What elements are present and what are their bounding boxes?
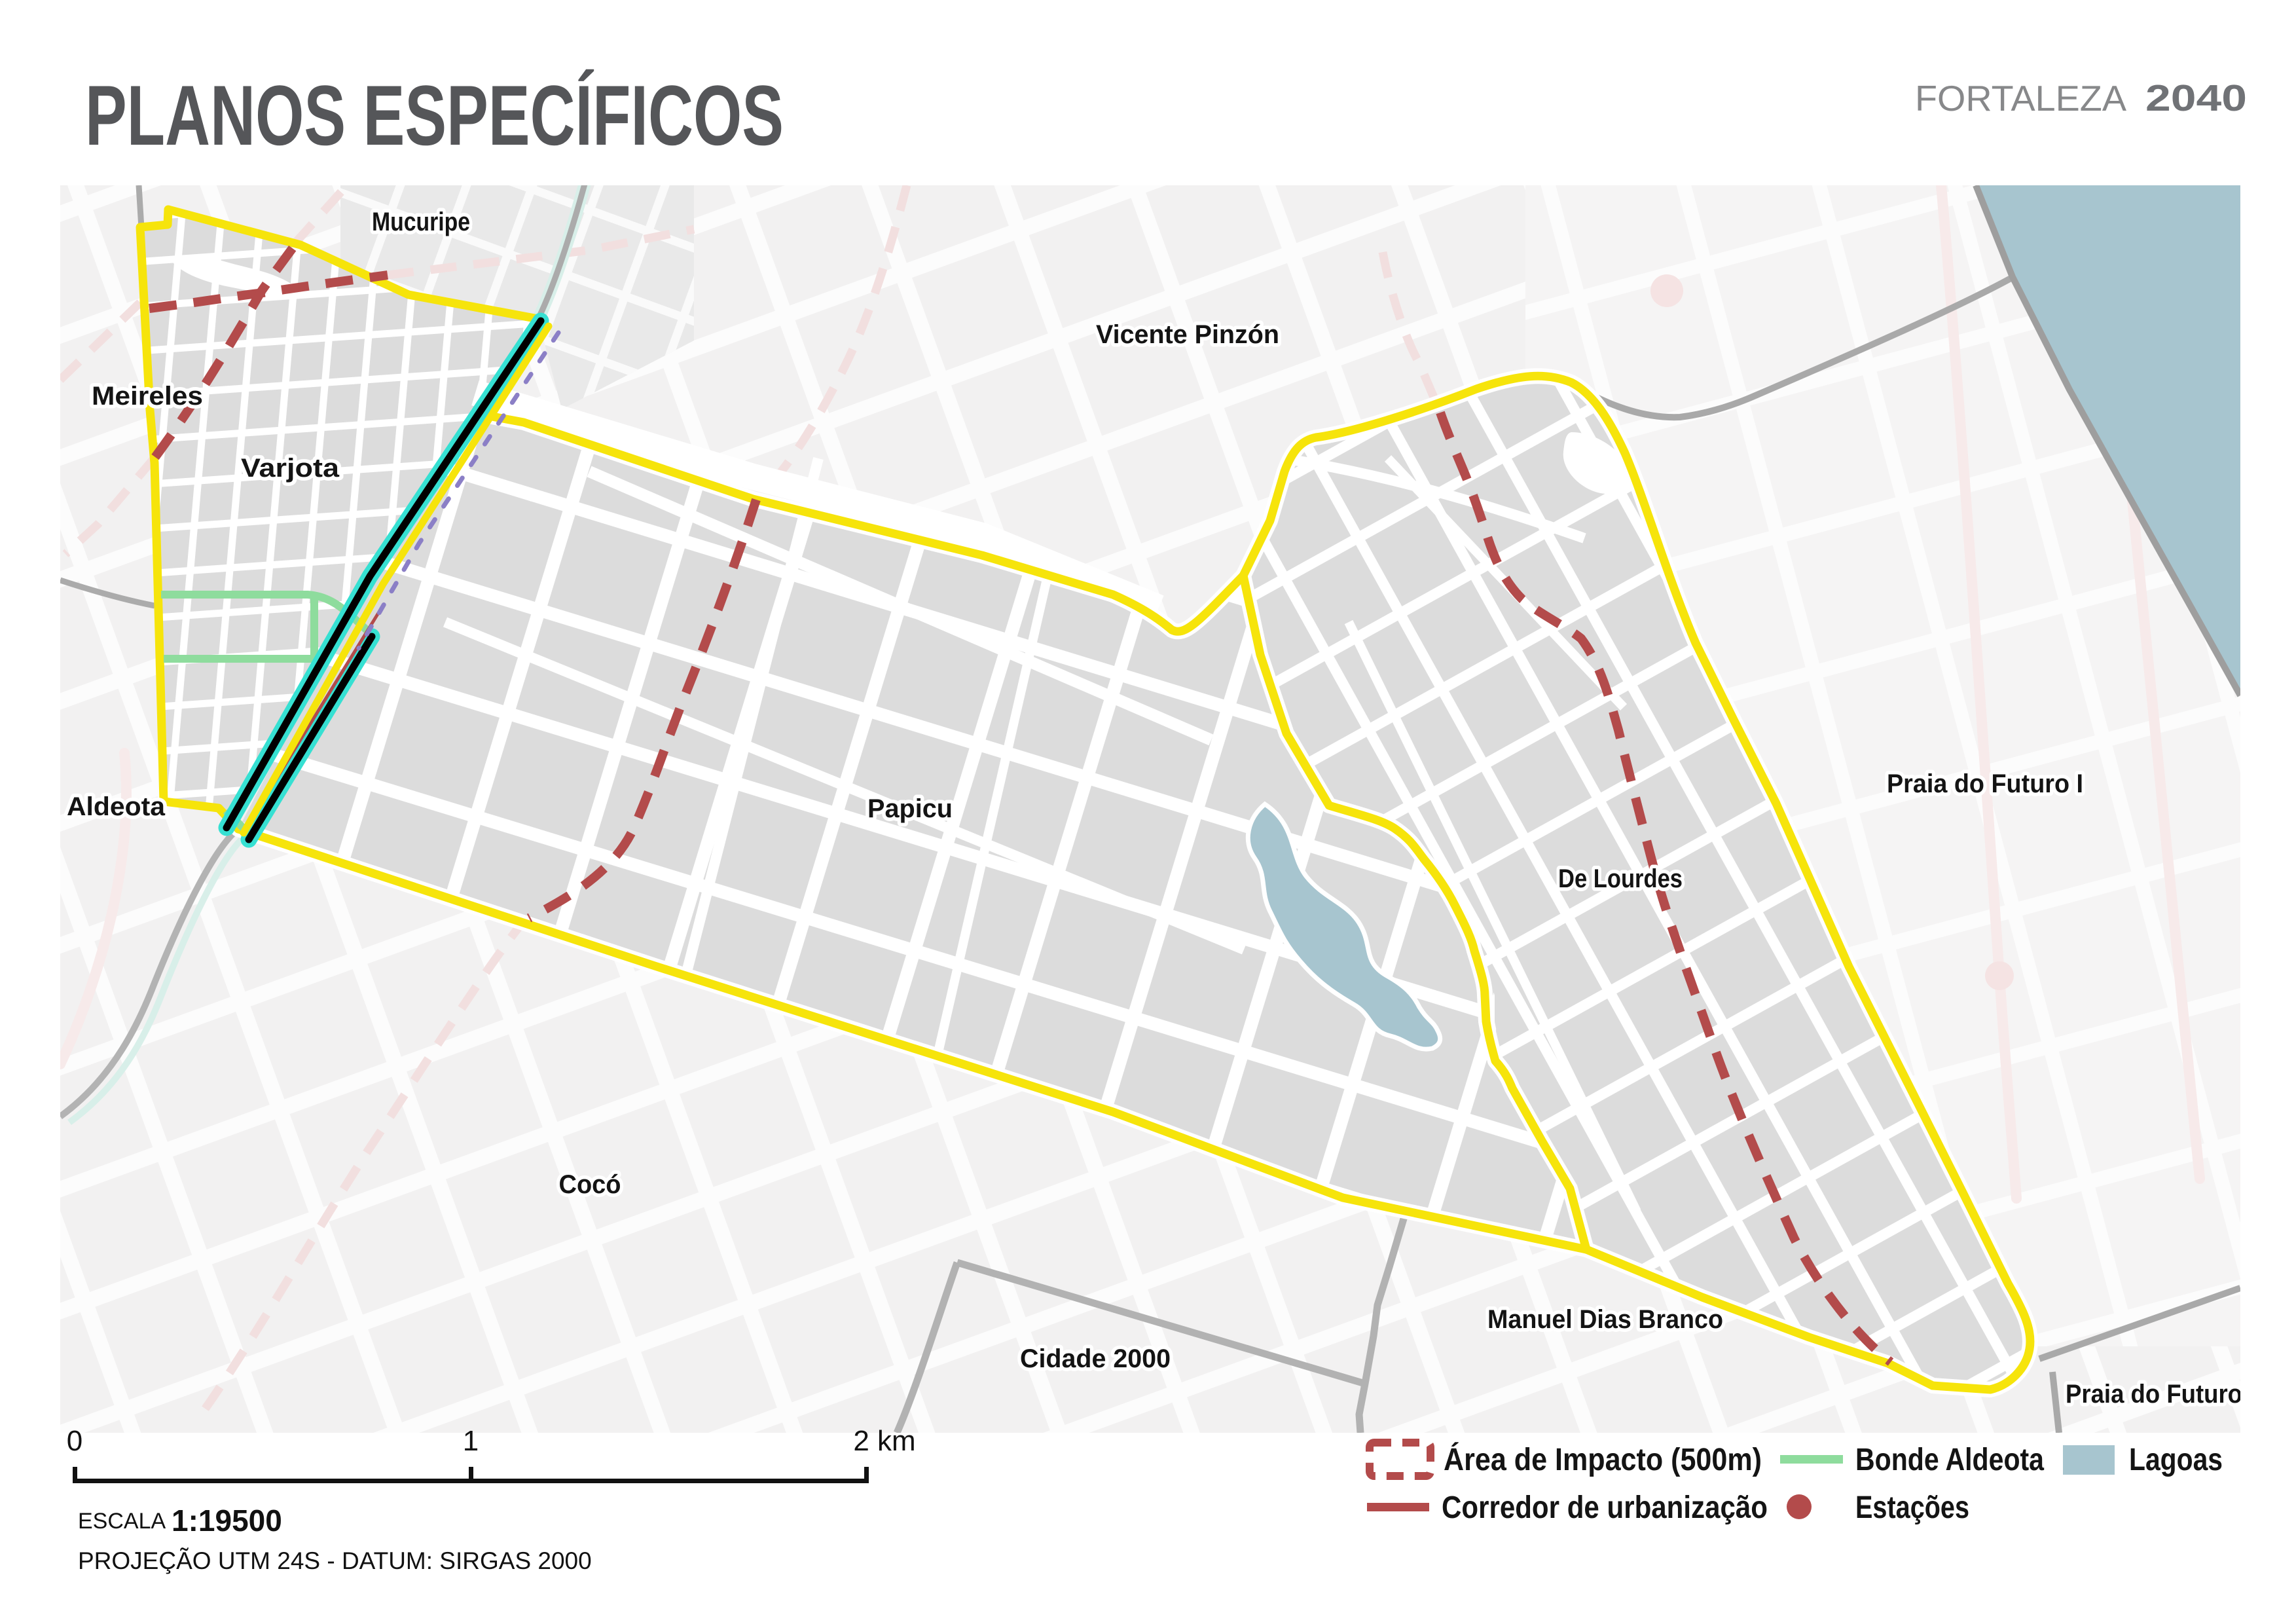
svg-text:Aldeota: Aldeota [67, 792, 166, 821]
svg-text:Praia do Futuro I: Praia do Futuro I [1887, 769, 2083, 798]
svg-text:Vicente Pinzón: Vicente Pinzón [1096, 320, 1279, 349]
svg-text:Cidade 2000: Cidade 2000 [1020, 1344, 1171, 1373]
svg-text:PLANOS ESPECÍFICOS: PLANOS ESPECÍFICOS [85, 67, 784, 163]
svg-text:Área de Impacto (500m): Área de Impacto (500m) [1444, 1442, 1762, 1477]
svg-text:ESCALA: ESCALA [78, 1509, 166, 1534]
svg-text:FORTALEZA: FORTALEZA [1915, 78, 2126, 119]
svg-text:Estações: Estações [1855, 1490, 1969, 1525]
svg-text:Manuel Dias Branco: Manuel Dias Branco [1487, 1305, 1723, 1334]
svg-text:1: 1 [463, 1425, 479, 1457]
svg-text:De Lourdes: De Lourdes [1558, 864, 1683, 893]
svg-text:Papicu: Papicu [867, 794, 953, 823]
svg-text:Bonde Aldeota: Bonde Aldeota [1855, 1443, 2044, 1477]
svg-text:2040: 2040 [2145, 77, 2247, 119]
svg-text:1:19500: 1:19500 [172, 1504, 282, 1538]
svg-text:Mucuripe: Mucuripe [372, 208, 470, 236]
svg-text:Varjota: Varjota [241, 454, 340, 483]
svg-text:Corredor de urbanização: Corredor de urbanização [1442, 1490, 1768, 1525]
svg-text:0: 0 [67, 1425, 82, 1457]
svg-text:2 km: 2 km [853, 1425, 915, 1457]
svg-text:PROJEÇÃO UTM 24S - DATUM: SIRG: PROJEÇÃO UTM 24S - DATUM: SIRGAS 2000 [78, 1547, 592, 1574]
svg-text:Meireles: Meireles [92, 382, 203, 411]
svg-text:Cocó: Cocó [559, 1170, 621, 1199]
svg-text:Lagoas: Lagoas [2129, 1443, 2223, 1477]
svg-text:Praia do Futuro: Praia do Futuro [2066, 1380, 2242, 1409]
